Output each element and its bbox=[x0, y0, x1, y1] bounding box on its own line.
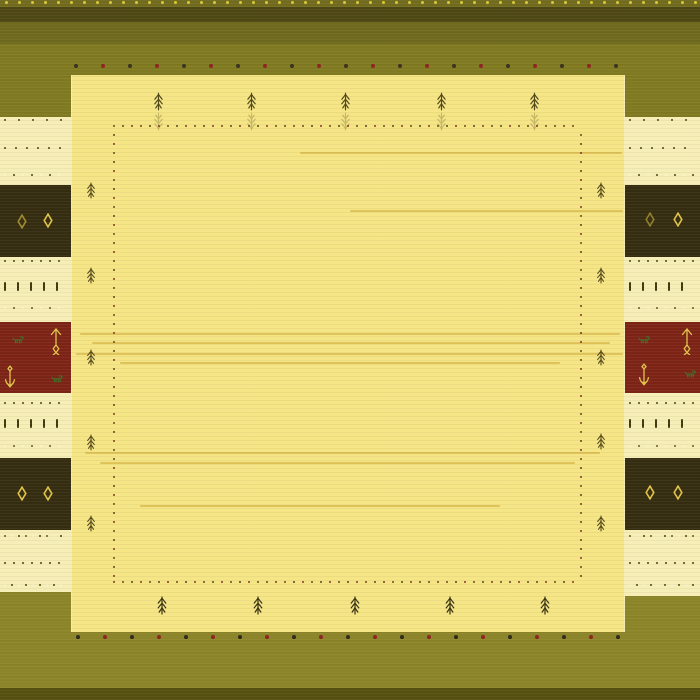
top-guard-dot-row-dot bbox=[479, 64, 483, 68]
selvedge-dot-row-dot bbox=[148, 1, 151, 4]
selvedge-dot-row-dot bbox=[44, 1, 47, 4]
top-guard-dot-row-dot bbox=[587, 64, 591, 68]
selvedge-dot-row-dot bbox=[499, 1, 502, 4]
selvedge-dot-row-dot bbox=[200, 1, 203, 4]
right-margin-ornament-dot bbox=[692, 535, 694, 537]
tree-motif bbox=[86, 267, 96, 284]
selvedge-dot-row-dot bbox=[460, 1, 463, 4]
selvedge-dot-row-dot bbox=[31, 1, 34, 4]
bottom-guard-dot-row-dot bbox=[373, 635, 377, 639]
animal-motif bbox=[51, 374, 64, 383]
weft-streak bbox=[100, 462, 575, 464]
top-guard-dot-row-dot bbox=[560, 64, 564, 68]
diamond-motif bbox=[673, 212, 683, 227]
selvedge-dot-row-dot bbox=[278, 1, 281, 4]
tree-motif-reflection bbox=[246, 112, 257, 131]
right-margin-ornament-dot bbox=[650, 584, 652, 586]
right-margin-ornament-dash bbox=[681, 282, 683, 291]
right-olive-block-top bbox=[625, 75, 700, 117]
top-guard-dot-row-dot bbox=[263, 64, 267, 68]
left-dark-block-bottom bbox=[0, 458, 71, 530]
weft-streak bbox=[350, 210, 623, 212]
left-dark-block-top bbox=[0, 185, 71, 257]
left-margin-ornament-dash bbox=[17, 282, 19, 291]
bottom-guard-dot-row-dot bbox=[211, 635, 215, 639]
left-olive-block-top bbox=[0, 75, 71, 117]
tree-motif bbox=[444, 596, 456, 615]
bottom-guard-dot-row-dot bbox=[265, 635, 269, 639]
bottom-guard-dot-row-dot bbox=[184, 635, 188, 639]
selvedge-dot-row-dot bbox=[473, 1, 476, 4]
bottom-guard-dot-row-dot bbox=[427, 635, 431, 639]
bottom-guard-dot-row-dot bbox=[508, 635, 512, 639]
animal-motif bbox=[638, 335, 651, 344]
weft-streak bbox=[140, 505, 500, 507]
selvedge-dot-row-dot bbox=[694, 1, 697, 4]
right-margin-ornament-dot bbox=[685, 535, 687, 537]
bottom-guard-dot-row-dot bbox=[481, 635, 485, 639]
left-margin-ornament-dash bbox=[4, 419, 6, 428]
animal-motif bbox=[684, 369, 697, 378]
bottom-dark-band bbox=[0, 688, 700, 700]
right-margin-ornament-dot bbox=[629, 584, 631, 586]
right-margin-ornament-dot bbox=[629, 535, 631, 537]
selvedge-dot-row-dot bbox=[642, 1, 645, 4]
diamond-motif bbox=[673, 485, 683, 500]
selvedge-dot-row-dot bbox=[421, 1, 424, 4]
right-margin-ornament-dash bbox=[629, 419, 631, 428]
left-margin-ornament-dash bbox=[17, 419, 19, 428]
tree-motif bbox=[596, 349, 606, 366]
left-margin-ornament-dot bbox=[46, 584, 48, 586]
selvedge-dot-row-dot bbox=[57, 1, 60, 4]
top-dark-band bbox=[0, 7, 700, 22]
selvedge-dot-row-dot bbox=[18, 1, 21, 4]
top-guard-dot-row-dot bbox=[398, 64, 402, 68]
right-margin-ornament-dot bbox=[671, 535, 673, 537]
tree-motif bbox=[340, 92, 351, 111]
selvedge-dot-row-dot bbox=[512, 1, 515, 4]
tree-motif bbox=[596, 267, 606, 284]
diamond-motif bbox=[645, 212, 655, 227]
top-guard-dot-row-dot bbox=[209, 64, 213, 68]
left-margin-ornament-dot bbox=[18, 535, 20, 537]
tree-motif bbox=[596, 433, 606, 450]
right-margin-ornament-dot bbox=[650, 535, 652, 537]
selvedge-dot-row-dot bbox=[343, 1, 346, 4]
right-margin-ornament-dot bbox=[636, 535, 638, 537]
selvedge-dot-row-dot bbox=[486, 1, 489, 4]
right-margin-ornament-dash bbox=[629, 282, 631, 291]
tree-motif bbox=[596, 515, 606, 532]
selvedge-dot-row-dot bbox=[551, 1, 554, 4]
left-margin-ornament-dash bbox=[43, 419, 45, 428]
left-margin-ornament-dot bbox=[53, 584, 55, 586]
right-margin-ornament-dot bbox=[678, 584, 680, 586]
anchor-motif bbox=[637, 363, 651, 387]
right-dark-block-bottom bbox=[625, 458, 700, 530]
selvedge-dot-row-dot bbox=[408, 1, 411, 4]
diamond-motif bbox=[43, 213, 53, 228]
diamond-motif bbox=[17, 486, 27, 501]
weft-streak bbox=[120, 362, 560, 364]
bottom-guard-dot-row-dot bbox=[157, 635, 161, 639]
left-margin-ornament-dash bbox=[43, 282, 45, 291]
left-margin-ornament-dash bbox=[4, 282, 6, 291]
top-guard-dot-row-dot bbox=[128, 64, 132, 68]
right-margin-ornament-dash bbox=[668, 282, 670, 291]
selvedge-dot-row-dot bbox=[616, 1, 619, 4]
animal-motif bbox=[12, 335, 25, 344]
tree-motif bbox=[153, 92, 164, 111]
selvedge-dot-row-dot bbox=[681, 1, 684, 4]
left-margin-ornament-dot bbox=[32, 584, 34, 586]
left-olive-block-bottom bbox=[0, 592, 71, 632]
bottom-guard-dot-row-dot bbox=[319, 635, 323, 639]
left-margin-ornament-dash bbox=[56, 282, 58, 291]
top-guard-dot-row-dot bbox=[236, 64, 240, 68]
left-margin-ornament-dot bbox=[11, 584, 13, 586]
bottom-olive-band bbox=[0, 632, 700, 688]
selvedge-dot-row-dot bbox=[330, 1, 333, 4]
bottom-guard-dot-row-dot bbox=[103, 635, 107, 639]
bottom-guard-dot-row-dot bbox=[76, 635, 80, 639]
bottom-guard-dot-row-dot bbox=[589, 635, 593, 639]
top-guard-dot-row-dot bbox=[533, 64, 537, 68]
tree-motif bbox=[86, 349, 96, 366]
right-margin-ornament-dot bbox=[636, 584, 638, 586]
selvedge-dot-row-dot bbox=[538, 1, 541, 4]
selvedge-dot-row-dot bbox=[434, 1, 437, 4]
left-margin-ornament-dot bbox=[4, 535, 6, 537]
selvedge-dot-row-dot bbox=[252, 1, 255, 4]
right-margin-ornament-dot bbox=[643, 584, 645, 586]
right-margin-ornament-dot bbox=[671, 584, 673, 586]
tree-motif bbox=[86, 182, 96, 199]
selvedge-dot-row-dot bbox=[265, 1, 268, 4]
left-margin-ornament-dot bbox=[25, 584, 27, 586]
diamond-motif bbox=[17, 214, 27, 229]
left-margin-ornament-dot bbox=[39, 535, 41, 537]
tree-motif bbox=[349, 596, 361, 615]
left-margin-ornament-dot bbox=[60, 535, 62, 537]
left-margin-ornament-dot bbox=[18, 584, 20, 586]
tree-motif bbox=[596, 182, 606, 199]
weft-streak bbox=[80, 333, 620, 335]
weft-streak bbox=[76, 353, 623, 355]
selvedge-dot-row-dot bbox=[226, 1, 229, 4]
top-guard-dot-row-dot bbox=[290, 64, 294, 68]
left-margin-ornament-dot bbox=[32, 535, 34, 537]
selvedge-dot-row-dot bbox=[356, 1, 359, 4]
bottom-guard-dot-row-dot bbox=[535, 635, 539, 639]
left-margin-ornament-dot bbox=[46, 535, 48, 537]
selvedge-dot-row-dot bbox=[304, 1, 307, 4]
weft-streak bbox=[92, 342, 610, 344]
diamond-motif bbox=[645, 485, 655, 500]
selvedge-dot-row-dot bbox=[590, 1, 593, 4]
arrow-motif bbox=[681, 328, 693, 355]
right-margin-ornament-dash bbox=[655, 282, 657, 291]
right-margin-ornament-dash bbox=[642, 419, 644, 428]
anchor-motif bbox=[3, 365, 17, 389]
selvedge-dot-row-dot bbox=[109, 1, 112, 4]
right-margin-ornament-dash bbox=[655, 419, 657, 428]
selvedge-dot-row-dot bbox=[5, 1, 8, 4]
left-margin-ornament-dash bbox=[30, 282, 32, 291]
right-margin-ornament-dash bbox=[668, 419, 670, 428]
top-guard-dot-row-dot bbox=[155, 64, 159, 68]
tree-motif-reflection bbox=[153, 112, 164, 131]
tree-motif bbox=[246, 92, 257, 111]
top-guard-dot-row-dot bbox=[344, 64, 348, 68]
right-margin-ornament-dot bbox=[692, 584, 694, 586]
left-margin-ornament-dot bbox=[4, 584, 6, 586]
left-margin-ornament-dot bbox=[11, 535, 13, 537]
selvedge-dot-row-dot bbox=[239, 1, 242, 4]
arrow-motif bbox=[50, 328, 62, 355]
selvedge-dot-row-dot bbox=[525, 1, 528, 4]
tree-motif bbox=[86, 434, 96, 451]
selvedge-dot-row-dot bbox=[317, 1, 320, 4]
right-margin-ornament-dot bbox=[678, 535, 680, 537]
bottom-guard-dot-row-dot bbox=[616, 635, 620, 639]
top-olive-band bbox=[0, 44, 700, 75]
top-guard-dot-row-dot bbox=[425, 64, 429, 68]
selvedge-dot-row-dot bbox=[187, 1, 190, 4]
top-guard-dot-row-dot bbox=[317, 64, 321, 68]
top-guard-dot-row-dot bbox=[371, 64, 375, 68]
selvedge-dot-row-dot bbox=[213, 1, 216, 4]
left-margin-ornament-dash bbox=[30, 419, 32, 428]
bottom-guard-dot-row-dot bbox=[346, 635, 350, 639]
left-margin-ornament-dot bbox=[53, 535, 55, 537]
rug-photo bbox=[0, 0, 700, 700]
tree-motif bbox=[539, 596, 551, 615]
top-selvedge-band bbox=[0, 0, 700, 7]
selvedge-dot-row-dot bbox=[70, 1, 73, 4]
left-margin-ornament-dot bbox=[39, 584, 41, 586]
top-guard-dot-row-dot bbox=[452, 64, 456, 68]
selvedge-dot-row-dot bbox=[135, 1, 138, 4]
bottom-guard-dot-row-dot bbox=[130, 635, 134, 639]
top-guard-dot-row-dot bbox=[101, 64, 105, 68]
selvedge-dot-row-dot bbox=[369, 1, 372, 4]
selvedge-dot-row-dot bbox=[629, 1, 632, 4]
selvedge-dot-row-dot bbox=[655, 1, 658, 4]
right-margin-ornament-dot bbox=[664, 535, 666, 537]
tree-motif bbox=[86, 515, 96, 532]
right-margin-ornament-dash bbox=[681, 419, 683, 428]
weft-streak bbox=[85, 452, 600, 454]
selvedge-dot-row-dot bbox=[447, 1, 450, 4]
top-guard-dot-row-dot bbox=[506, 64, 510, 68]
top-guard-dot-row-dot bbox=[614, 64, 618, 68]
bottom-guard-dot-row-dot bbox=[562, 635, 566, 639]
weft-streak bbox=[300, 152, 622, 154]
right-margin-ornament-dot bbox=[657, 535, 659, 537]
left-margin-ornament-dash bbox=[56, 419, 58, 428]
selvedge-dot-row-dot bbox=[96, 1, 99, 4]
selvedge-dot-row-dot bbox=[668, 1, 671, 4]
left-margin-ornament-dot bbox=[25, 535, 27, 537]
diamond-motif bbox=[43, 486, 53, 501]
tree-motif bbox=[436, 92, 447, 111]
selvedge-dot-row-dot bbox=[603, 1, 606, 4]
selvedge-dot-row-dot bbox=[395, 1, 398, 4]
selvedge-dot-row-dot bbox=[577, 1, 580, 4]
selvedge-dot-row-dot bbox=[161, 1, 164, 4]
tree-motif-reflection bbox=[436, 112, 447, 131]
selvedge-dot-row-dot bbox=[382, 1, 385, 4]
selvedge-dot-row-dot bbox=[291, 1, 294, 4]
selvedge-dot-row-dot bbox=[83, 1, 86, 4]
selvedge-dot-row-dot bbox=[122, 1, 125, 4]
tree-motif-reflection bbox=[529, 112, 540, 131]
selvedge-dot-row-dot bbox=[564, 1, 567, 4]
bottom-guard-dot-row-dot bbox=[292, 635, 296, 639]
right-margin-ornament-dash bbox=[642, 282, 644, 291]
right-dark-block-top bbox=[625, 185, 700, 257]
tree-motif bbox=[156, 596, 168, 615]
top-olive-dark-band bbox=[0, 22, 700, 44]
left-margin-ornament-dot bbox=[60, 584, 62, 586]
bottom-guard-dot-row-dot bbox=[238, 635, 242, 639]
selvedge-dot-row-dot bbox=[174, 1, 177, 4]
bottom-guard-dot-row-dot bbox=[400, 635, 404, 639]
tree-motif-reflection bbox=[340, 112, 351, 131]
right-margin-ornament-dot bbox=[685, 584, 687, 586]
right-olive-block-bottom bbox=[625, 596, 700, 632]
right-margin-ornament-dot bbox=[664, 584, 666, 586]
top-guard-dot-row-dot bbox=[74, 64, 78, 68]
tree-motif bbox=[529, 92, 540, 111]
top-guard-dot-row-dot bbox=[182, 64, 186, 68]
bottom-guard-dot-row-dot bbox=[454, 635, 458, 639]
right-margin-ornament-dot bbox=[657, 584, 659, 586]
right-margin-ornament-dot bbox=[643, 535, 645, 537]
tree-motif bbox=[252, 596, 264, 615]
